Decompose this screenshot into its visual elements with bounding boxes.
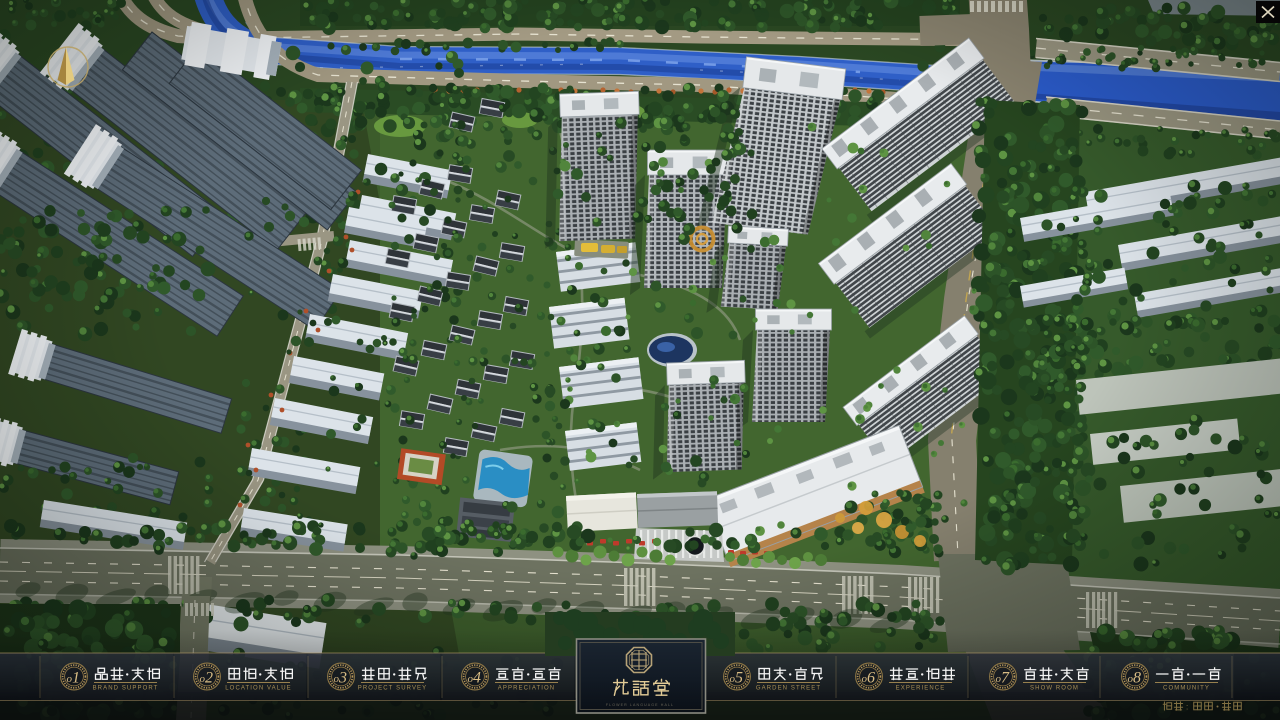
svg-text:BRAND SUPPORT: BRAND SUPPORT (93, 686, 159, 692)
svg-text:o8: o8 (1128, 670, 1142, 687)
svg-text::: : (1186, 703, 1188, 712)
svg-text:SHOW ROOM: SHOW ROOM (1030, 686, 1079, 692)
svg-text:o6: o6 (862, 670, 876, 687)
svg-text:COMMUNITY: COMMUNITY (1163, 686, 1210, 692)
svg-text:o3: o3 (334, 670, 348, 687)
svg-text:GARDEN STREET: GARDEN STREET (756, 686, 821, 692)
svg-text:o2: o2 (200, 670, 214, 687)
svg-text:FLOWER LANGUAGE HALL: FLOWER LANGUAGE HALL (606, 703, 674, 707)
svg-text:o4: o4 (468, 670, 482, 687)
svg-text:o1: o1 (67, 670, 81, 687)
svg-text:o7: o7 (996, 670, 1011, 687)
svg-text:LOCATION VALUE: LOCATION VALUE (225, 686, 292, 692)
svg-text:EXPERIENCE: EXPERIENCE (896, 686, 946, 692)
svg-text:o5: o5 (730, 670, 744, 687)
svg-text:PROJECT SURVEY: PROJECT SURVEY (358, 686, 428, 692)
svg-text:APPRECIATION: APPRECIATION (498, 686, 555, 692)
